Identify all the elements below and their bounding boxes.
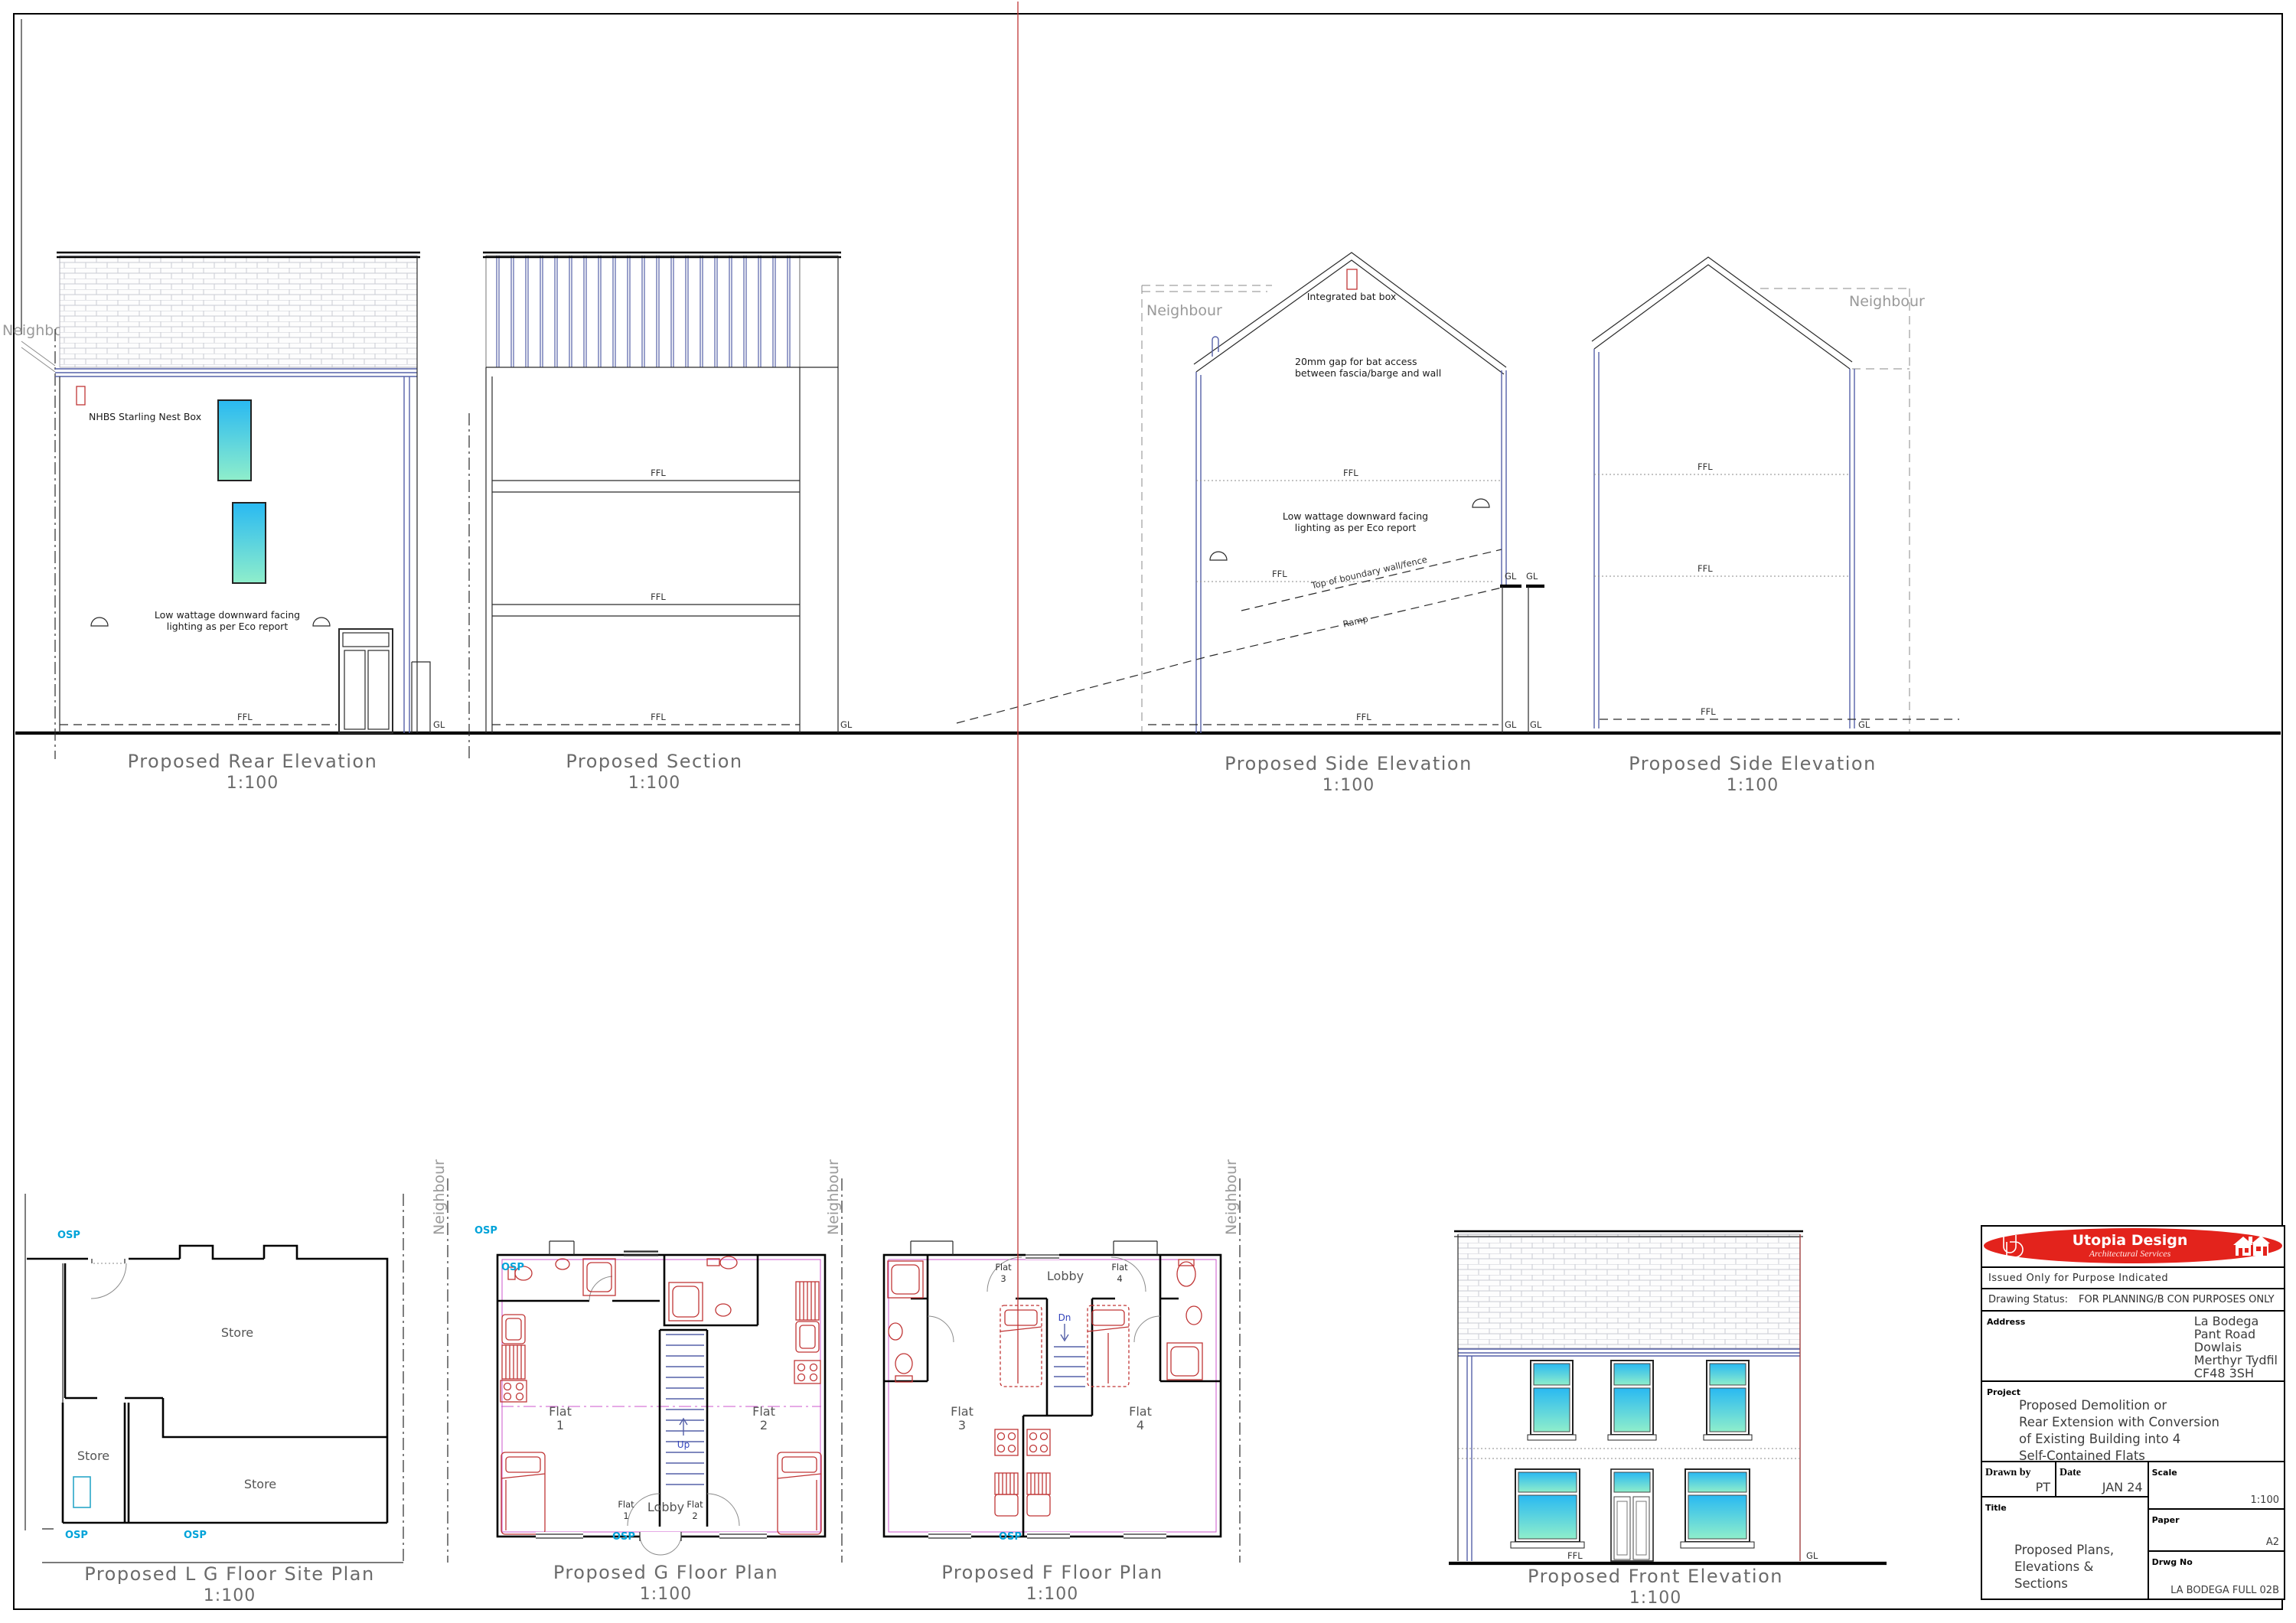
lobby-label: Lobby <box>647 1500 684 1514</box>
address-line: CF48 3SH <box>2194 1367 2278 1380</box>
flat-number: 1 <box>556 1418 564 1432</box>
address-line: Pant Road <box>2194 1328 2278 1341</box>
logo-text: Utopia Design Architectural Services <box>2073 1234 2188 1259</box>
bed <box>1088 1305 1129 1387</box>
ud-monogram-icon <box>1994 1230 2028 1261</box>
bed <box>501 1452 545 1534</box>
outer-walls <box>884 1255 1221 1537</box>
lamp-icon <box>313 618 330 626</box>
outer-walls <box>497 1255 825 1537</box>
door-jambs <box>92 1259 125 1263</box>
store1-walls <box>65 1263 387 1437</box>
drawing-title: Proposed G Floor Plan <box>553 1562 778 1583</box>
tank-symbol <box>73 1477 90 1507</box>
inner-wall-line <box>889 1260 1216 1532</box>
ffl-label: FFL <box>1567 1550 1583 1561</box>
grid-right: Scale 1:100 Paper A2 Drwg No LA BODEGA F… <box>2149 1462 2284 1599</box>
drawn-by-label: Drawn by <box>1985 1467 2031 1478</box>
window <box>218 400 251 481</box>
flat-door-label: Flat <box>687 1499 703 1510</box>
bottom-windows <box>536 1532 767 1555</box>
boundary-wall-line <box>1241 549 1502 611</box>
plan-boundaries: Neighbour Neighbour Neighbour <box>431 1159 1240 1563</box>
flat-label: Flat <box>752 1404 775 1419</box>
f-floor-plan: Flat 3 Lobby Flat 4 Dn Flat 3 Flat 4 <box>884 2 1221 1604</box>
roof-hatch <box>486 256 800 367</box>
date-value: JAN 24 <box>2102 1480 2143 1494</box>
logo-subtitle: Architectural Services <box>2073 1249 2188 1259</box>
flat-door-label: Flat <box>1111 1262 1128 1273</box>
title-line: Sections <box>2014 1576 2114 1592</box>
project-line: of Existing Building into 4 <box>2019 1431 2219 1448</box>
bathroom-fixtures <box>669 1256 737 1321</box>
lighting-note-2: lighting as per Eco report <box>167 621 289 632</box>
neighbour-outline <box>1142 285 1272 292</box>
title-line: Elevations & <box>2014 1559 2114 1576</box>
project-label: Project <box>1987 1387 2020 1397</box>
gl-label: GL <box>1858 719 1870 730</box>
flat-door-label: Flat <box>995 1262 1012 1273</box>
project-line: Rear Extension with Conversion <box>2019 1414 2219 1431</box>
drawing-title: Proposed Section <box>566 751 742 772</box>
drawing-title: Proposed F Floor Plan <box>941 1562 1163 1583</box>
floor-slab-1 <box>492 605 800 616</box>
eaves-lines <box>55 369 417 376</box>
flat-door-label: Flat <box>618 1499 634 1510</box>
ramp-line <box>957 588 1502 723</box>
roof-tiles <box>1458 1234 1800 1348</box>
scale-label: Scale <box>2152 1468 2177 1478</box>
project-line: Proposed Demolition or <box>2019 1397 2219 1414</box>
door-swing <box>91 1263 126 1299</box>
osp-marker: OSP <box>184 1530 207 1541</box>
lower-windows <box>1511 1469 1754 1561</box>
logo-row: Utopia Design Architectural Services <box>1982 1227 2284 1268</box>
ffl-label: FFL <box>1343 468 1358 478</box>
lamp-icon <box>1473 499 1489 507</box>
stair-steps <box>666 1335 704 1484</box>
lighting-note-2: lighting as per Eco report <box>1295 522 1417 533</box>
drawing-status-row: Drawing Status: FOR PLANNING/B CON PURPO… <box>1982 1289 2284 1312</box>
rear-elevation: Neighbour NHBS Starling Nest Box Low wat… <box>2 19 469 793</box>
neighbour-label: Neighbour <box>1849 293 1925 310</box>
drawn-date-row: Drawn by PT Date JAN 24 <box>1982 1462 2148 1498</box>
house-icon <box>2232 1232 2272 1260</box>
store-label: Store <box>221 1325 253 1340</box>
flat-number: 2 <box>760 1418 768 1432</box>
bathroom-fixtures <box>508 1259 615 1295</box>
floor-slab-2 <box>492 481 800 492</box>
lamp-icon <box>1210 552 1227 560</box>
kitchen-right <box>794 1282 820 1383</box>
osp-marker: OSP <box>57 1230 80 1241</box>
drawing-title: Proposed L G Floor Site Plan <box>84 1563 374 1585</box>
flat-door-number: 4 <box>1117 1273 1122 1284</box>
neighbour-label-vertical: Neighbour <box>1223 1159 1240 1235</box>
bat-box-label: Integrated bat box <box>1307 291 1397 302</box>
up-arrow-icon <box>680 1419 687 1436</box>
ridge-lines <box>57 253 420 257</box>
rear-door <box>339 629 393 733</box>
flat-door-number: 2 <box>692 1511 697 1521</box>
flat-door-number: 3 <box>1000 1273 1006 1284</box>
project-cell: Project Proposed Demolition or Rear Exte… <box>1982 1382 2284 1462</box>
drawing-title: Proposed Side Elevation <box>1225 753 1473 774</box>
ramp-label: Ramp <box>1342 614 1369 630</box>
address-label: Address <box>1987 1317 2025 1327</box>
drwg-no-value: LA BODEGA FULL 02B <box>2170 1585 2279 1596</box>
neighbour-label-vertical: Neighbour <box>825 1159 842 1235</box>
bathroom-fixtures <box>1167 1260 1202 1380</box>
scale-cell: Scale 1:100 <box>2149 1462 2284 1510</box>
wall-left <box>1594 349 1599 728</box>
date-cell: Date JAN 24 <box>2056 1462 2148 1496</box>
front-elevation: FFL GL Proposed Front Elevation 1:100 <box>1449 1231 1887 1608</box>
garden-wall <box>412 662 430 733</box>
bat-box-icon <box>1347 269 1357 289</box>
wall-right <box>1850 369 1854 728</box>
address-line: La Bodega <box>2194 1315 2278 1328</box>
store1-bottom <box>65 1398 387 1437</box>
ffl-label: FFL <box>1356 712 1371 722</box>
issued-note: Issued Only for Purpose Indicated <box>1982 1268 2284 1289</box>
top-wall <box>27 1246 387 1263</box>
bat-gap-1: 20mm gap for bat access <box>1295 356 1417 367</box>
stair-lobby-walls <box>1016 1299 1115 1537</box>
drawing-title: Proposed Rear Elevation <box>128 751 378 772</box>
ffl-label: FFL <box>651 712 666 722</box>
nest-box-label: NHBS Starling Nest Box <box>89 411 201 422</box>
top-window-gap <box>624 1252 658 1255</box>
ffl-label: FFL <box>1698 563 1713 574</box>
down-arrow-icon <box>1061 1324 1068 1341</box>
lighting-note-1: Low wattage downward facing <box>1283 510 1428 522</box>
window <box>1608 1361 1656 1440</box>
lobby-label: Lobby <box>1047 1269 1084 1283</box>
drawing-scale: 1:100 <box>628 774 680 793</box>
downpipe <box>404 376 409 733</box>
osp-marker: OSP <box>612 1531 635 1543</box>
address-cell: Address La Bodega Pant Road Dowlais Mert… <box>1982 1312 2284 1382</box>
flat-door-number: 1 <box>623 1511 628 1521</box>
address-line: Dowlais <box>2194 1341 2278 1354</box>
side-elevation-1: Neighbour Integrated bat box 20mm gap fo… <box>957 253 1544 795</box>
paper-label: Paper <box>2152 1515 2180 1525</box>
status-label: Drawing Status: <box>1988 1294 2068 1305</box>
title-block: Utopia Design Architectural Services <box>1981 1225 2285 1600</box>
gl-label: GL <box>433 719 445 730</box>
osp-marker: OSP <box>475 1225 497 1237</box>
nest-box-icon <box>77 386 85 405</box>
lamp-icon <box>91 618 108 626</box>
address-lines: La Bodega Pant Road Dowlais Merthyr Tydf… <box>2194 1315 2278 1380</box>
bed <box>1000 2 1042 1387</box>
g-floor-plan: Up Flat 1 Flat 2 Flat 1 Lobby Flat 2 OSP… <box>475 1225 825 1604</box>
upper-windows <box>1528 1361 1752 1440</box>
door-swing <box>1134 1316 1160 1342</box>
gl-label: GL <box>1530 719 1542 730</box>
wall-left <box>486 367 492 733</box>
section: FFL FFL FFL GL Proposed Section 1:100 <box>483 253 853 793</box>
store-label: Store <box>244 1477 276 1491</box>
lighting-note-1: Low wattage downward facing <box>155 609 300 621</box>
lane-walls <box>25 1194 63 1530</box>
ffl-label: FFL <box>1701 706 1716 717</box>
flat-label: Flat <box>549 1404 572 1419</box>
paper-value: A2 <box>2266 1537 2279 1548</box>
drawing-title: Proposed Front Elevation <box>1528 1566 1783 1587</box>
flat-number: 3 <box>958 1418 966 1432</box>
grid-left: Drawn by PT Date JAN 24 Title Proposed P… <box>1982 1462 2149 1599</box>
front-door <box>1611 1469 1653 1561</box>
osp-marker: OSP <box>999 1531 1022 1543</box>
gl-label: GL <box>1526 571 1538 582</box>
title-lines: Proposed Plans, Elevations & Sections <box>2014 1542 2114 1592</box>
chimney-stub <box>550 1241 574 1255</box>
bat-gap-2: between fascia/barge and wall <box>1295 367 1441 379</box>
osp-marker: OSP <box>65 1530 88 1541</box>
bathroom-fixtures <box>888 1261 923 1382</box>
bathroom4-walls <box>1160 1255 1221 1381</box>
drawing-scale: 1:100 <box>204 1586 256 1605</box>
address-line: Merthyr Tydfil <box>2194 1354 2278 1367</box>
logo-oval: Utopia Design Architectural Services <box>1984 1228 2282 1263</box>
chimney-stubs <box>911 1241 1157 1255</box>
window <box>1681 1469 1754 1548</box>
stair-steps <box>1054 1347 1085 1387</box>
wall-left <box>1196 372 1201 733</box>
neighbour-label-vertical: Neighbour <box>431 1159 448 1235</box>
flat-label: Flat <box>951 1404 974 1419</box>
wall-right <box>1502 370 1506 585</box>
osp-marker: OSP <box>501 1262 524 1273</box>
title-line: Proposed Plans, <box>2014 1542 2114 1559</box>
store-label: Store <box>77 1449 109 1463</box>
logo-title: Utopia Design <box>2073 1234 2188 1249</box>
drawing-canvas: Neighbour NHBS Starling Nest Box Low wat… <box>0 0 2296 1623</box>
neighbour-label: Neighbour <box>1146 302 1222 319</box>
drawing-scale: 1:100 <box>1322 776 1375 795</box>
gl-label: GL <box>1505 719 1517 730</box>
date-label: Date <box>2060 1467 2081 1478</box>
ffl-label: FFL <box>1272 569 1287 579</box>
boundary-wall-label: Top of boundary wall/fence <box>1309 554 1428 592</box>
eaves-lines <box>1458 1349 1800 1356</box>
front-wall-lines <box>1502 586 1528 733</box>
roof-tiles <box>60 256 417 367</box>
title-block-grid: Drawn by PT Date JAN 24 Title Proposed P… <box>1982 1462 2284 1599</box>
vent-pipe <box>1212 337 1218 357</box>
roof-top-lines <box>483 253 841 257</box>
gl-label: GL <box>840 719 853 730</box>
bathroom3-walls <box>884 1255 928 1381</box>
kitchen-left <box>501 1315 527 1402</box>
drawn-by-cell: Drawn by PT <box>1982 1462 2056 1496</box>
window <box>1528 1361 1576 1440</box>
roof-gable <box>1592 257 1852 369</box>
title-cell: Title Proposed Plans, Elevations & Secti… <box>1982 1498 2148 1599</box>
drawing-scale: 1:100 <box>1026 1585 1078 1604</box>
dn-label: Dn <box>1058 1312 1071 1323</box>
site-plan: Store Store Store OSP OSP OSP Proposed L… <box>25 1194 403 1605</box>
ffl-label: FFL <box>1698 461 1713 472</box>
drawing-scale: 1:100 <box>227 774 279 793</box>
status-value: FOR PLANNING/B CON PURPOSES ONLY <box>2079 1294 2275 1305</box>
window <box>1704 1361 1752 1440</box>
bed <box>778 1452 821 1534</box>
drawn-by-value: PT <box>2036 1480 2050 1494</box>
ffl-label: FFL <box>651 468 666 478</box>
drawing-title: Proposed Side Elevation <box>1629 753 1877 774</box>
drawing-scale: 1:100 <box>640 1585 692 1604</box>
drawing-sheet: Neighbour NHBS Starling Nest Box Low wat… <box>0 0 2296 1623</box>
project-lines: Proposed Demolition or Rear Extension wi… <box>2019 1397 2219 1465</box>
door-swing <box>589 1276 612 1301</box>
drawing-scale: 1:100 <box>1727 776 1779 795</box>
store3-walls <box>63 1403 387 1523</box>
gl-label: GL <box>1806 1550 1818 1561</box>
drawing-scale: 1:100 <box>1629 1589 1681 1608</box>
drwg-no-cell: Drwg No LA BODEGA FULL 02B <box>2149 1552 2284 1599</box>
side-elevation-2: Neighbour FFL FFL FFL GL Proposed Side E… <box>1592 257 1959 795</box>
scale-value: 1:100 <box>2251 1494 2279 1506</box>
neighbour-roof-lines <box>21 341 55 372</box>
flat-label: Flat <box>1129 1404 1152 1419</box>
title-label: Title <box>1985 1503 2007 1513</box>
gl-label: GL <box>1505 571 1517 582</box>
floor-level-lines <box>1458 1449 1800 1458</box>
window <box>1511 1469 1584 1548</box>
flat-number: 4 <box>1137 1418 1144 1432</box>
drwg-no-label: Drwg No <box>2152 1557 2193 1567</box>
ffl-label: FFL <box>237 712 253 722</box>
window <box>233 503 266 583</box>
ffl-label: FFL <box>651 592 666 602</box>
door-swing <box>928 1316 954 1342</box>
up-label: Up <box>677 1439 690 1450</box>
paper-cell: Paper A2 <box>2149 1510 2284 1552</box>
roof-plain <box>800 256 838 367</box>
